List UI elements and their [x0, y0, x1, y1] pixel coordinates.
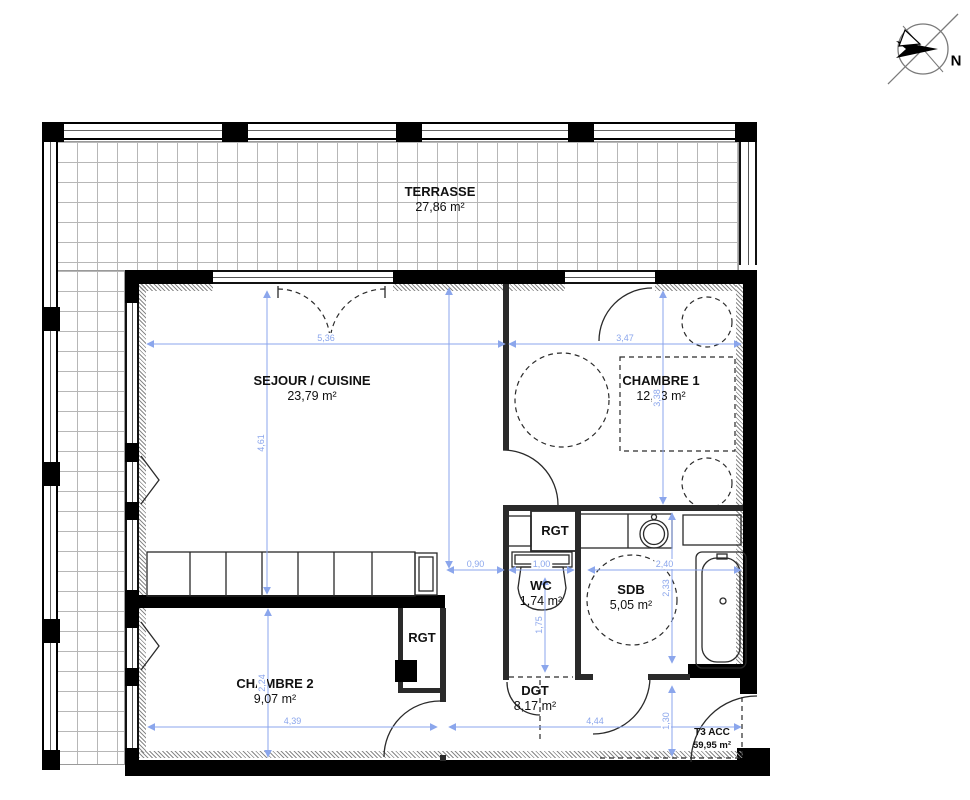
room-name: DGT — [514, 683, 556, 699]
wall-chambre1-sdb — [503, 505, 743, 511]
wall-sejour-hall-upper — [503, 284, 509, 450]
railing-pier — [222, 124, 248, 142]
chambre1-window — [565, 270, 655, 284]
room-area: 5,05 m² — [610, 598, 652, 614]
room-label-rgt1: RGT — [541, 523, 568, 539]
room-label-t3: T3 ACC59,95 m² — [693, 727, 731, 751]
left-glazing — [125, 686, 139, 748]
dimension-label: 5,36 — [315, 333, 337, 343]
room-label-rgt2: RGT — [408, 630, 435, 646]
wall-rgt2-bottom — [398, 688, 446, 693]
wall-right — [743, 270, 757, 666]
terrace-glazing-right — [739, 142, 757, 265]
insulation — [655, 284, 736, 291]
room-label-dgt: DGT8,17 m² — [514, 683, 556, 715]
north-label: N — [951, 53, 962, 70]
terrace-tiles-left — [56, 270, 125, 765]
railing-pier — [44, 619, 60, 643]
dimension-label: 1,00 — [531, 559, 553, 569]
room-name: RGT — [541, 523, 568, 539]
room-name: CHAMBRE 2 — [236, 676, 313, 692]
room-label-sejour: SEJOUR / CUISINE23,79 m² — [253, 373, 370, 405]
insulation — [139, 284, 146, 753]
room-label-sdb: SDB5,05 m² — [610, 582, 652, 614]
dimension-label: 2,24 — [257, 672, 267, 694]
room-label-terrasse: TERRASSE27,86 m² — [405, 184, 476, 216]
room-area: 27,86 m² — [405, 200, 476, 216]
room-label-wc: WC1,74 m² — [520, 578, 562, 610]
room-area: 8,17 m² — [514, 699, 556, 715]
dimension-label: 1,30 — [661, 710, 671, 732]
room-name: RGT — [408, 630, 435, 646]
railing-pier — [735, 124, 757, 142]
room-name: T3 ACC — [693, 727, 731, 740]
railing-pier — [44, 462, 60, 486]
left-glazing — [125, 303, 139, 443]
left-glazing — [125, 462, 139, 502]
dimension-label: 1,75 — [534, 614, 544, 636]
compass-icon — [888, 14, 958, 84]
room-name: WC — [520, 578, 562, 594]
railing-pier — [44, 122, 60, 142]
dimension-label: 0,90 — [465, 559, 487, 569]
dimension-label: 2,33 — [661, 577, 671, 599]
dimension-label: 4,39 — [282, 716, 304, 726]
wall-sdb-bottom-l — [575, 674, 593, 680]
room-area: 23,79 m² — [253, 389, 370, 405]
wall-right-jog — [740, 678, 757, 694]
bay-window — [213, 270, 393, 284]
wall-sdb-bottom-r — [648, 674, 690, 680]
room-name: TERRASSE — [405, 184, 476, 200]
left-glazing — [125, 628, 139, 668]
room-name: SEJOUR / CUISINE — [253, 373, 370, 389]
wall-bottom — [125, 760, 770, 776]
dimension-label: 4,44 — [584, 716, 606, 726]
terrace-railing-top — [42, 122, 757, 140]
dimension-label: 4,61 — [256, 432, 266, 454]
room-area: 9,07 m² — [236, 692, 313, 708]
terrace-railing-left — [42, 122, 58, 770]
railing-pier — [44, 750, 60, 770]
wall-wc-sdb — [575, 511, 581, 680]
wall-pier-rgt2 — [395, 660, 417, 682]
room-name: SDB — [610, 582, 652, 598]
wall-chambre2-dgt-stub — [440, 755, 446, 761]
railing-pier — [44, 307, 60, 331]
wall-sdb-entry — [688, 664, 757, 678]
railing-pier — [396, 124, 422, 142]
terrace-tiles-top — [56, 141, 739, 271]
room-area: 59,95 m² — [693, 739, 731, 751]
dimension-label: 2,40 — [654, 559, 676, 569]
room-label-chambre2: CHAMBRE 29,07 m² — [236, 676, 313, 708]
dimension-label: 3,38 — [652, 387, 662, 409]
insulation — [139, 284, 213, 291]
wall-sejour-chambre2 — [139, 595, 445, 608]
dimension-label: 3,47 — [614, 333, 636, 343]
floor-plan: TERRASSE27,86 m²SEJOUR / CUISINE23,79 m²… — [0, 0, 970, 800]
wall-sejour-hall-lower — [503, 505, 509, 680]
insulation — [736, 284, 743, 664]
room-area: 1,74 m² — [520, 594, 562, 610]
left-glazing — [125, 520, 139, 590]
railing-pier — [568, 124, 594, 142]
insulation — [393, 284, 565, 291]
